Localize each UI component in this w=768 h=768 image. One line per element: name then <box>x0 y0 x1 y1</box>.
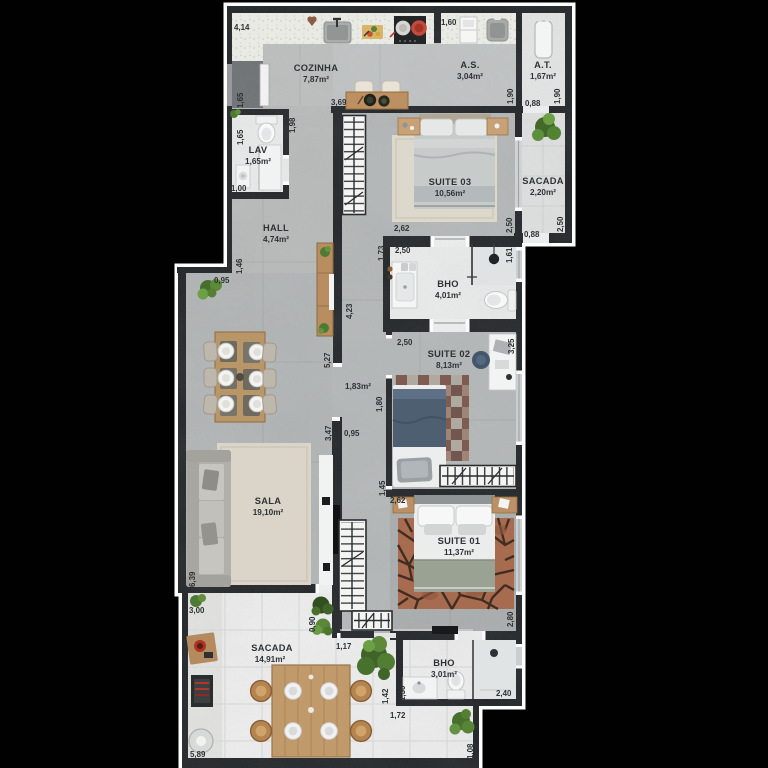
svg-text:2,50: 2,50 <box>395 246 411 255</box>
svg-text:COZINHA: COZINHA <box>294 63 338 73</box>
svg-text:1,65m²: 1,65m² <box>245 157 271 166</box>
svg-text:5,89: 5,89 <box>190 750 206 759</box>
svg-text:3,00: 3,00 <box>189 606 205 615</box>
svg-text:1,90: 1,90 <box>506 88 515 104</box>
svg-text:0,90: 0,90 <box>308 616 317 632</box>
svg-text:7,87m²: 7,87m² <box>303 75 329 84</box>
svg-text:1,00: 1,00 <box>231 184 247 193</box>
svg-text:5,27: 5,27 <box>323 352 332 368</box>
svg-text:3,47: 3,47 <box>324 425 333 441</box>
svg-text:1,72: 1,72 <box>390 711 406 720</box>
svg-text:14,91m²: 14,91m² <box>255 655 286 664</box>
svg-text:0,88: 0,88 <box>524 230 540 239</box>
svg-text:1,42: 1,42 <box>381 688 390 704</box>
svg-text:2,50: 2,50 <box>556 216 565 232</box>
svg-text:4,23: 4,23 <box>345 303 354 319</box>
svg-text:SACADA: SACADA <box>251 643 293 653</box>
svg-text:1,45: 1,45 <box>378 480 387 496</box>
svg-text:1,65: 1,65 <box>236 92 245 108</box>
svg-text:2,50: 2,50 <box>505 217 514 233</box>
svg-text:19,10m²: 19,10m² <box>253 508 284 517</box>
svg-text:1,61: 1,61 <box>505 247 514 263</box>
svg-text:2,62: 2,62 <box>394 224 410 233</box>
svg-text:1,17: 1,17 <box>336 642 352 651</box>
svg-text:8,13m²: 8,13m² <box>436 361 462 370</box>
svg-text:SACADA: SACADA <box>522 176 564 186</box>
svg-text:SUITE 02: SUITE 02 <box>428 349 471 359</box>
svg-text:2,40: 2,40 <box>496 689 512 698</box>
svg-text:3,69: 3,69 <box>331 98 347 107</box>
svg-text:1,90: 1,90 <box>553 88 562 104</box>
svg-text:1,83m²: 1,83m² <box>345 382 371 391</box>
svg-text:3,01m²: 3,01m² <box>431 670 457 679</box>
svg-text:0,95: 0,95 <box>214 276 230 285</box>
svg-text:0,95: 0,95 <box>344 429 360 438</box>
svg-text:1,80: 1,80 <box>375 396 384 412</box>
svg-text:0,88: 0,88 <box>525 99 541 108</box>
svg-text:6,39: 6,39 <box>188 571 197 587</box>
svg-text:BHO: BHO <box>433 658 455 668</box>
svg-text:2,50: 2,50 <box>397 338 413 347</box>
svg-text:2,20m²: 2,20m² <box>530 188 556 197</box>
svg-text:4,74m²: 4,74m² <box>263 235 289 244</box>
svg-text:1,30: 1,30 <box>398 685 407 701</box>
svg-text:3,04m²: 3,04m² <box>457 72 483 81</box>
svg-text:HALL: HALL <box>263 223 289 233</box>
svg-text:2,62: 2,62 <box>390 496 406 505</box>
svg-text:SUITE 01: SUITE 01 <box>438 536 481 546</box>
svg-text:1,67m²: 1,67m² <box>530 72 556 81</box>
svg-text:1,65: 1,65 <box>236 129 245 145</box>
svg-text:1,98: 1,98 <box>288 117 297 133</box>
svg-text:A.T.: A.T. <box>534 60 552 70</box>
svg-text:1,73: 1,73 <box>377 245 386 261</box>
svg-text:A.S.: A.S. <box>460 60 479 70</box>
svg-text:SUITE 03: SUITE 03 <box>429 177 472 187</box>
svg-text:10,56m²: 10,56m² <box>435 189 466 198</box>
svg-text:LAV: LAV <box>249 145 268 155</box>
svg-text:1,60: 1,60 <box>441 18 457 27</box>
svg-text:4,14: 4,14 <box>234 23 250 32</box>
svg-text:4,01m²: 4,01m² <box>435 291 461 300</box>
svg-text:SALA: SALA <box>255 496 282 506</box>
svg-text:1,46: 1,46 <box>235 258 244 274</box>
svg-text:BHO: BHO <box>437 279 459 289</box>
svg-text:1,08: 1,08 <box>466 743 475 759</box>
svg-text:2,80: 2,80 <box>506 611 515 627</box>
svg-text:11,37m²: 11,37m² <box>444 548 474 557</box>
svg-text:3,25: 3,25 <box>507 338 516 354</box>
